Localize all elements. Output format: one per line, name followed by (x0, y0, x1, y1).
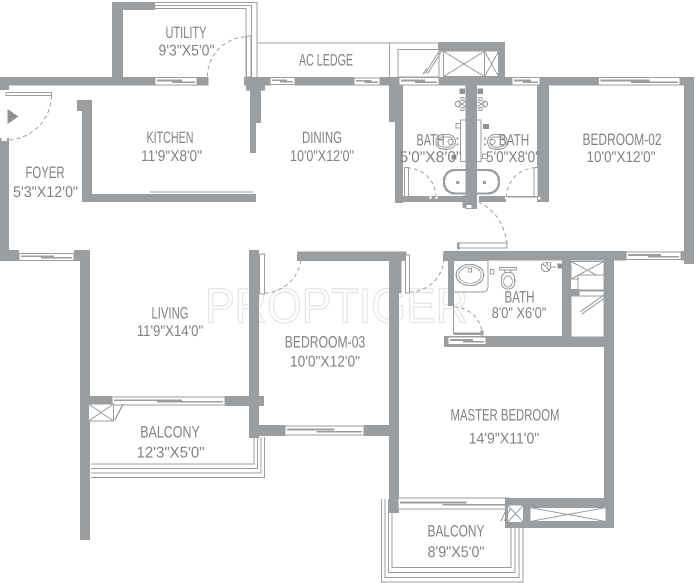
svg-text:BALCONY: BALCONY (140, 424, 200, 442)
svg-text:UTILITY: UTILITY (166, 24, 207, 42)
svg-text:DINING: DINING (302, 129, 342, 147)
svg-text:14'9"X11'0": 14'9"X11'0" (469, 431, 540, 448)
svg-text:9'3"X5'0": 9'3"X5'0" (159, 43, 215, 60)
svg-text:BALCONY: BALCONY (428, 523, 485, 541)
svg-text:BATH: BATH (417, 132, 445, 150)
svg-text:FOYER: FOYER (26, 164, 65, 182)
svg-text:BEDROOM-02: BEDROOM-02 (583, 131, 662, 149)
svg-text:5'3"X12'0": 5'3"X12'0" (13, 184, 78, 201)
svg-text:BATH: BATH (499, 132, 530, 150)
svg-text:10'0"X12'0": 10'0"X12'0" (290, 354, 360, 371)
svg-text:AC LEDGE: AC LEDGE (299, 52, 353, 70)
svg-text:5'0"X8'0": 5'0"X8'0" (400, 149, 462, 166)
svg-text:PROPTIGER: PROPTIGER (205, 280, 468, 334)
svg-text:12'3"X5'0": 12'3"X5'0" (137, 445, 205, 462)
svg-text:11'9"X8'0": 11'9"X8'0" (141, 148, 202, 165)
svg-text:8'0" X6'0": 8'0" X6'0" (492, 305, 547, 322)
svg-text:BATH: BATH (505, 289, 535, 307)
svg-text:5'0"X8'0": 5'0"X8'0" (486, 149, 540, 166)
svg-text:KITCHEN: KITCHEN (147, 129, 194, 147)
svg-text:LIVING: LIVING (152, 305, 189, 323)
svg-text:10'0"X12'0": 10'0"X12'0" (290, 148, 354, 165)
svg-text:8'9"X5'0": 8'9"X5'0" (428, 544, 485, 561)
svg-text:BEDROOM-03: BEDROOM-03 (285, 334, 366, 352)
svg-text:10'0"X12'0": 10'0"X12'0" (587, 149, 656, 166)
svg-text:MASTER BEDROOM: MASTER BEDROOM (451, 407, 560, 425)
svg-text:11'9"X14'0": 11'9"X14'0" (137, 323, 204, 340)
